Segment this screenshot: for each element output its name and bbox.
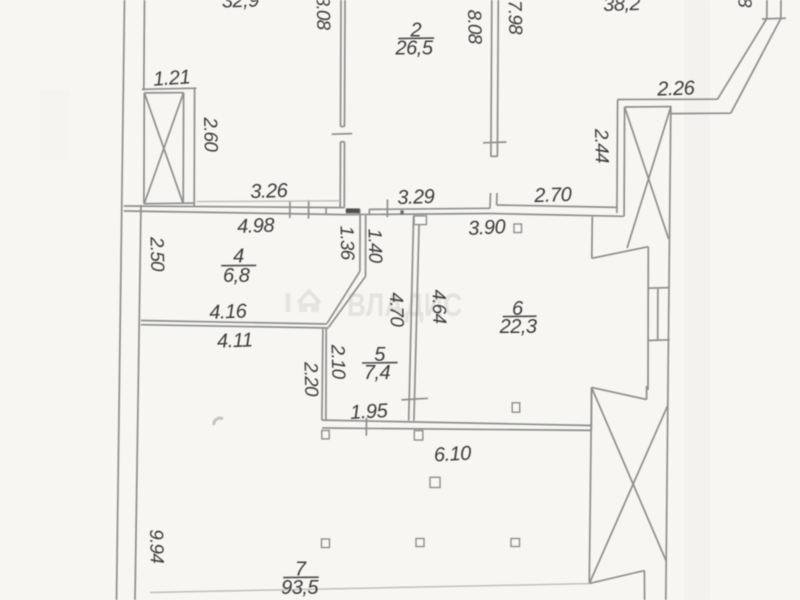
svg-text:4.98: 4.98 (237, 215, 275, 238)
svg-text:4.64: 4.64 (428, 289, 450, 324)
svg-text:1.36: 1.36 (336, 225, 358, 261)
svg-text:32,9: 32,9 (222, 0, 260, 12)
svg-text:4.11: 4.11 (217, 329, 253, 353)
svg-text:6.10: 6.10 (433, 443, 471, 467)
svg-text:9.94: 9.94 (145, 529, 167, 564)
svg-text:22,3: 22,3 (499, 316, 537, 338)
svg-text:4.70: 4.70 (385, 292, 407, 328)
svg-text:26,5: 26,5 (395, 38, 434, 60)
svg-text:2.60: 2.60 (199, 116, 221, 153)
svg-text:7.98: 7.98 (504, 0, 526, 35)
svg-text:3.90: 3.90 (468, 216, 506, 240)
svg-text:3.26: 3.26 (250, 180, 289, 203)
svg-text:93,5: 93,5 (281, 577, 319, 599)
svg-text:1.40: 1.40 (364, 228, 386, 264)
svg-text:7,4: 7,4 (364, 362, 391, 384)
svg-text:2.20: 2.20 (300, 361, 322, 398)
svg-text:2.50: 2.50 (146, 236, 168, 273)
svg-text:1.21: 1.21 (152, 66, 190, 91)
svg-text:8.08: 8.08 (312, 0, 334, 31)
svg-text:1.95: 1.95 (350, 400, 389, 424)
svg-text:2.70: 2.70 (533, 184, 572, 207)
svg-text:2.26: 2.26 (656, 77, 696, 100)
svg-text:2.10: 2.10 (327, 343, 349, 380)
svg-text:4.16: 4.16 (209, 301, 248, 324)
svg-text:6,8: 6,8 (223, 265, 250, 287)
svg-text:8.08: 8.08 (463, 9, 485, 45)
svg-text:2.44: 2.44 (590, 128, 612, 164)
svg-text:3.29: 3.29 (397, 186, 435, 209)
svg-text:38,2: 38,2 (603, 0, 641, 16)
